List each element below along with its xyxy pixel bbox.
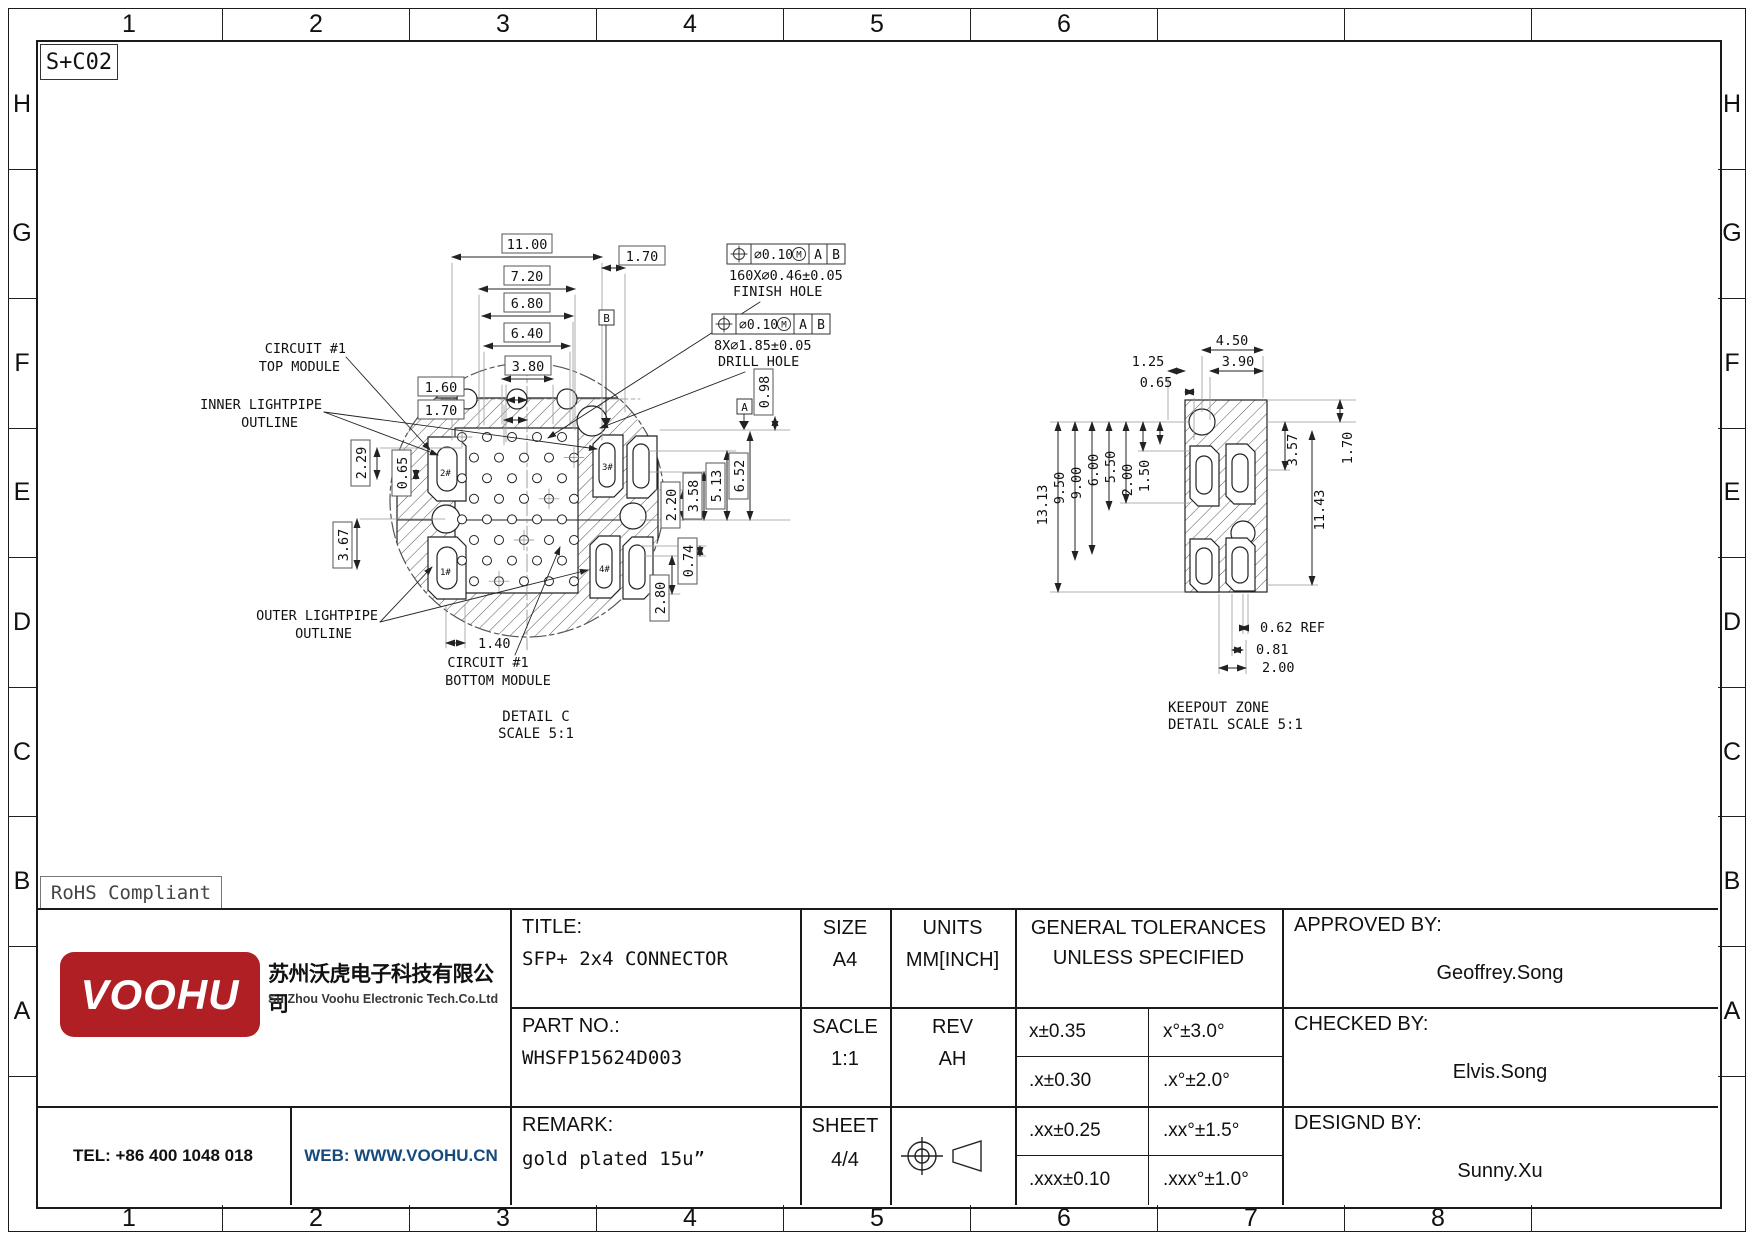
remark-label: REMARK: [522, 1114, 613, 1137]
tolerance-linear-1: x±0.35 [1015, 1007, 1162, 1056]
dim-1.50: 1.50 [1137, 460, 1153, 493]
dim-2.80: 2.80 [653, 582, 669, 615]
units-value: MM[INCH] [890, 946, 1015, 974]
circuit1-bottom-label2: BOTTOM MODULE [445, 673, 551, 689]
dim-3.80: 3.80 [512, 359, 545, 375]
dim-11.43: 11.43 [1312, 490, 1328, 531]
drill-hole-label: DRILL HOLE [718, 354, 799, 370]
dim-13.13: 13.13 [1035, 485, 1051, 526]
keepout-scale: DETAIL SCALE 5:1 [1168, 717, 1303, 733]
circuit1-top-label2: TOP MODULE [259, 359, 340, 375]
dim-7.20: 7.20 [511, 269, 544, 285]
slot-label: 4# [599, 565, 610, 575]
fcf-finish-hole: ∅0.10 M A B 160X∅0.46±0.05 FINISH HOLE [727, 244, 845, 300]
detail-c-scale: SCALE 5:1 [498, 726, 574, 742]
dim-3.67: 3.67 [336, 529, 352, 562]
tolerance-angular-3: .xx°±1.5° [1149, 1106, 1296, 1155]
rev-label: REV [890, 1013, 1015, 1041]
dim-2.00-bottom: 2.00 [1262, 660, 1295, 676]
dim-3.90: 3.90 [1222, 354, 1255, 370]
approved-by-label: APPROVED BY: [1294, 914, 1442, 937]
rev-value: AH [890, 1045, 1015, 1073]
dim-3.57: 3.57 [1285, 434, 1301, 467]
tolerance-header-2: UNLESS SPECIFIED [1015, 944, 1282, 972]
sheet-label: SHEET [800, 1112, 890, 1140]
svg-text:B: B [603, 312, 610, 325]
fcf-datum-2: B [832, 248, 840, 263]
dim-1.70: 1.70 [1340, 432, 1356, 465]
outer-lightpipe-label: OUTER LIGHTPIPE [256, 608, 378, 624]
circuit1-top-label: CIRCUIT #1 [265, 341, 346, 357]
keepout-caption: KEEPOUT ZONE [1168, 700, 1269, 716]
dim-6.00: 6.00 [1086, 454, 1102, 487]
detail-c-view: 2# 3# 1# 4# [200, 234, 845, 742]
part-no-label: PART NO.: [522, 1015, 620, 1038]
datum-a-flag: A [737, 399, 752, 430]
tolerance-linear-4: .xxx±0.10 [1015, 1155, 1162, 1205]
keepout-view: 4.50 3.90 1.25 0.65 13.13 9.50 9.00 6.00… [1035, 333, 1356, 733]
fcf-tolerance: ∅0.10 [739, 318, 778, 333]
tolerance-angular-1: x°±3.0° [1149, 1007, 1296, 1056]
svg-text:M: M [796, 251, 802, 261]
scale-label: SACLE [800, 1013, 890, 1041]
checked-by-name: Elvis.Song [1282, 1057, 1718, 1087]
size-value: A4 [800, 946, 890, 974]
fcf-tolerance: ∅0.10 [754, 248, 793, 263]
approved-by-name: Geoffrey.Song [1282, 958, 1718, 988]
drawing-sheet: 1 2 3 4 5 6 1 2 3 4 5 6 7 8 H G F E D C … [0, 0, 1754, 1240]
units-label: UNITS [890, 914, 1015, 942]
company-name-en: Su Zhou Voohu Electronic Tech.Co.Ltd [268, 992, 508, 1006]
third-angle-projection-icon [895, 1125, 1010, 1187]
finish-hole-qty: 160X∅0.46±0.05 [729, 268, 843, 284]
dim-9.50: 9.50 [1052, 472, 1068, 505]
dim-5.13: 5.13 [709, 470, 725, 503]
svg-text:A: A [741, 401, 748, 414]
tolerance-angular-4: .xxx°±1.0° [1149, 1155, 1296, 1205]
dim-0.65: 0.65 [1140, 375, 1173, 391]
drill-hole-qty: 8X∅1.85±0.05 [714, 338, 812, 354]
dim-2.00: 2.00 [1120, 464, 1136, 497]
dim-6.80: 6.80 [511, 296, 544, 312]
part-no-value: WHSFP15624D003 [522, 1047, 682, 1069]
company-tel: TEL: +86 400 1048 018 [36, 1106, 290, 1205]
scale-value: 1:1 [800, 1045, 890, 1073]
company-name-cn: 苏州沃虎电子科技有限公司 [268, 958, 506, 1018]
slot-label: 2# [440, 469, 451, 479]
dim-9.00: 9.00 [1069, 467, 1085, 500]
dim-1.25: 1.25 [1132, 354, 1165, 370]
dim-0.81: 0.81 [1256, 642, 1289, 658]
remark-value: gold plated 15u” [522, 1148, 705, 1170]
finish-hole-grid [452, 427, 584, 591]
dim-1.70: 1.70 [425, 403, 458, 419]
dim-4.50: 4.50 [1216, 333, 1249, 349]
dim-11.00: 11.00 [507, 237, 548, 253]
svg-text:M: M [781, 321, 787, 331]
dim-0.74: 0.74 [681, 545, 697, 578]
size-label: SIZE [800, 914, 890, 942]
dim-1.60: 1.60 [425, 380, 458, 396]
dim-6.52: 6.52 [732, 460, 748, 493]
detail-c-caption: DETAIL C [502, 709, 569, 725]
fcf-datum-2: B [817, 318, 825, 333]
circuit1-bottom-label: CIRCUIT #1 [447, 655, 528, 671]
dim-1.40: 1.40 [478, 636, 511, 652]
company-web: WEB: WWW.VOOHU.CN [292, 1106, 510, 1205]
dim-2.20: 2.20 [664, 489, 680, 522]
inner-lightpipe-label2: OUTLINE [241, 415, 298, 431]
tolerance-linear-3: .xx±0.25 [1015, 1106, 1162, 1155]
tolerance-header-1: GENERAL TOLERANCES [1015, 914, 1282, 942]
dim-3.58: 3.58 [686, 480, 702, 513]
voohu-logo-text: VOOHU [80, 971, 239, 1019]
outer-lightpipe-label2: OUTLINE [295, 626, 352, 642]
designed-by-label: DESIGND BY: [1294, 1112, 1422, 1135]
sheet-value: 4/4 [800, 1146, 890, 1174]
slot-label: 1# [440, 568, 451, 578]
dim-0.65: 0.65 [395, 457, 411, 490]
dim-2.29: 2.29 [354, 447, 370, 480]
fcf-datum-1: A [799, 318, 807, 333]
fcf-drill-hole: ∅0.10 M A B 8X∅1.85±0.05 DRILL HOLE [712, 314, 830, 370]
title-label: TITLE: [522, 916, 582, 939]
dim-0.62-ref: 0.62 REF [1260, 620, 1325, 636]
checked-by-label: CHECKED BY: [1294, 1013, 1428, 1036]
voohu-logo: VOOHU [60, 952, 260, 1037]
designed-by-name: Sunny.Xu [1282, 1156, 1718, 1186]
inner-lightpipe-label: INNER LIGHTPIPE [200, 397, 322, 413]
tolerance-linear-2: .x±0.30 [1015, 1056, 1162, 1106]
tolerance-angular-2: .x°±2.0° [1149, 1056, 1296, 1106]
fcf-datum-1: A [814, 248, 822, 263]
dim-6.40: 6.40 [511, 326, 544, 342]
dim-5.50: 5.50 [1103, 451, 1119, 484]
title-value: SFP+ 2x4 CONNECTOR [522, 948, 728, 970]
dim-1.70-right: 1.70 [626, 249, 659, 265]
dim-0.98: 0.98 [757, 376, 773, 409]
slot-label: 3# [602, 463, 613, 473]
finish-hole-label: FINISH HOLE [733, 284, 822, 300]
